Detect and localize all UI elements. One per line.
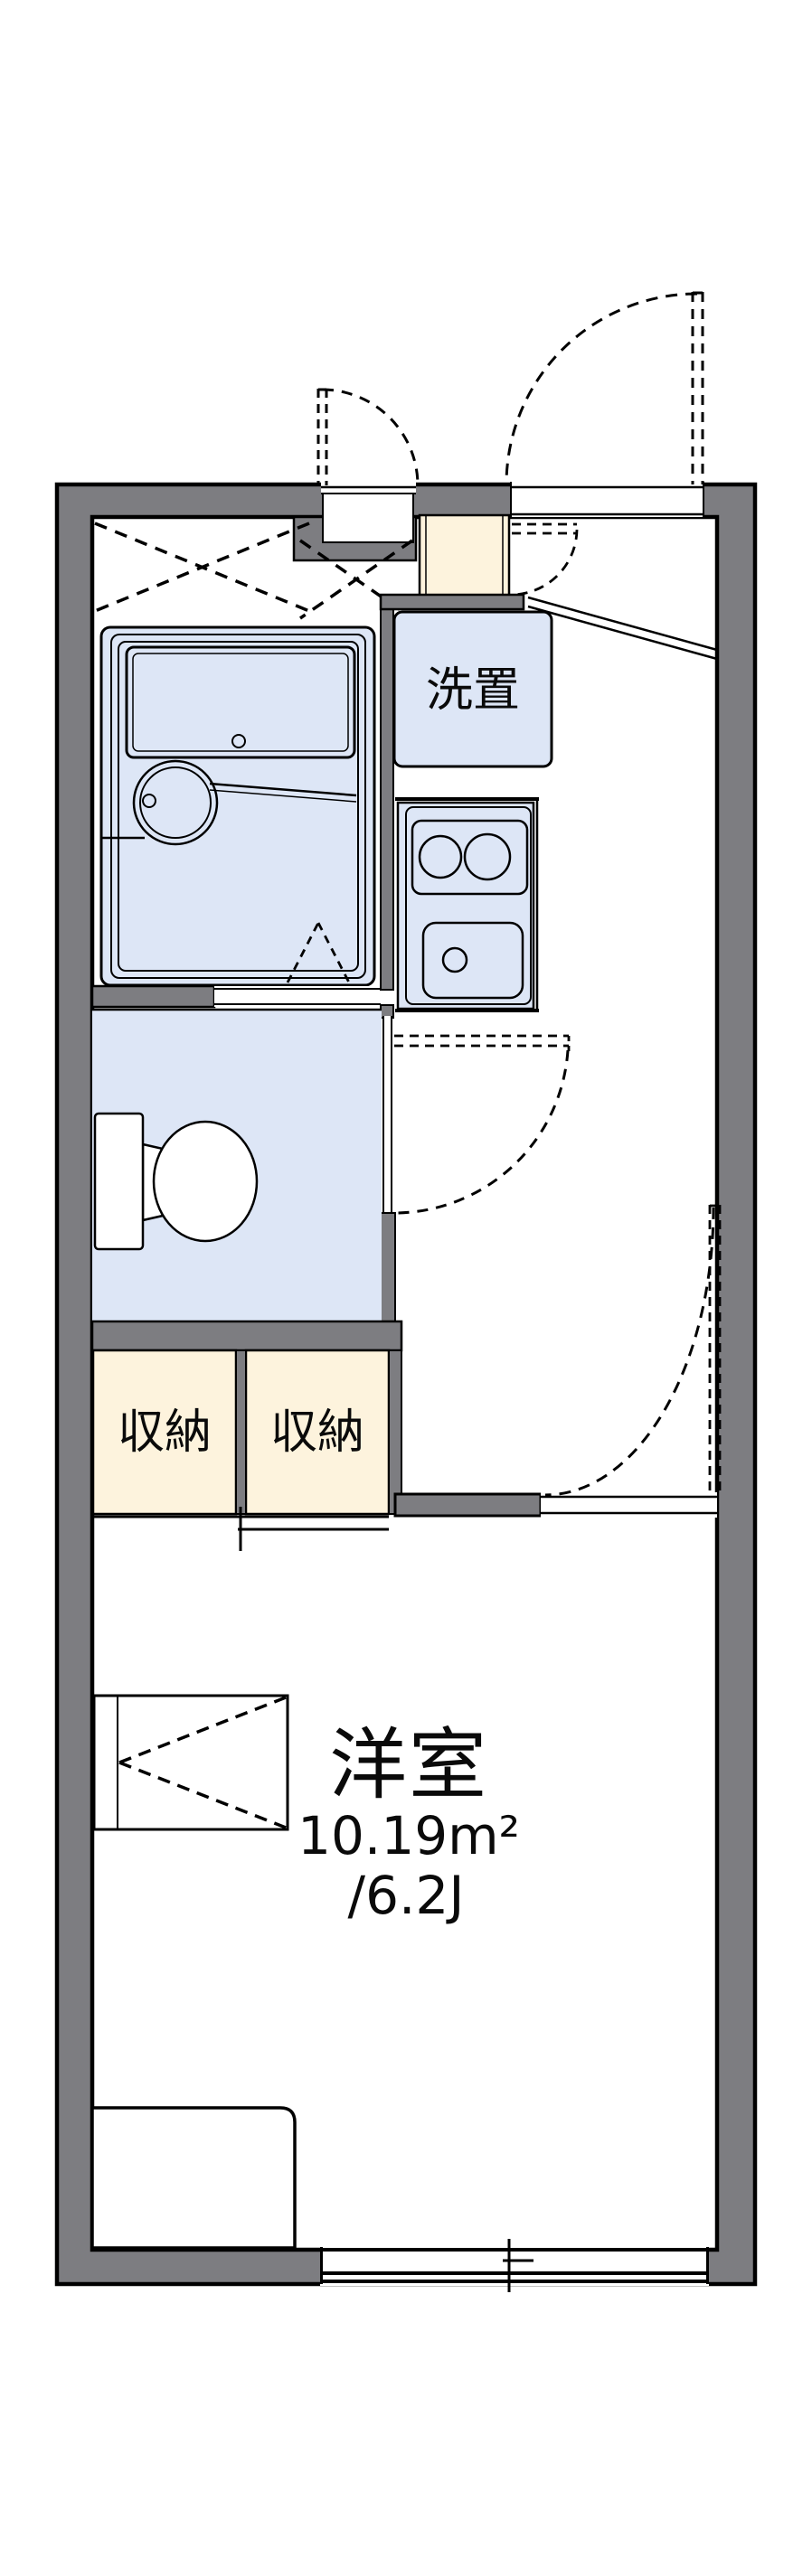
storage-side-wall [389,1350,401,1514]
floorplan-page: 収納 収納 洗置 [0,0,812,2576]
bay-window [94,1696,288,1829]
shoe-cabinet [420,515,509,596]
storage-right-label: 収納 [270,1406,364,1460]
hall-door-leaf [512,524,577,533]
toilet-bowl [154,1122,257,1241]
bath-unit [101,627,374,985]
washbasin [134,761,217,844]
storage-left-label: 収納 [118,1406,212,1460]
room-name-label: 洋室 [329,1720,488,1810]
toilet-door-swing [398,1050,568,1213]
wall-nook-pocket [323,494,413,542]
partition-wall [381,1005,393,1018]
toilet-tank [95,1114,143,1249]
hall-door-swing [512,530,577,595]
room-area-tatami-label: /6.2J [348,1865,465,1926]
meterbox-door-swing [323,390,418,485]
toilet-door-leaf [394,1036,569,1052]
bath-bottom-wall [92,986,214,1007]
floorplan-drawing: 収納 収納 洗置 [0,0,812,2576]
genkan-step-edge [528,606,717,659]
partition-wall [381,595,393,990]
bathtub [127,647,354,757]
hall-wall-band [381,595,524,609]
entrance-door-swing [506,294,697,485]
mainroom-wall [395,1494,541,1516]
toilet-bottom-wall [92,1321,401,1350]
room-area-m2-label: 10.19m² [297,1805,520,1866]
kitchen-unit [395,799,539,1012]
storage-divider-wall [236,1350,246,1514]
partition-wall [381,1213,395,1323]
genkan-step-edge [528,597,717,650]
drain-icon [232,735,245,747]
washing-machine-label: 洗置 [426,663,520,718]
bed [92,2108,295,2248]
toilet-fixture [95,1114,257,1249]
mainroom-door-swing [545,1208,713,1495]
